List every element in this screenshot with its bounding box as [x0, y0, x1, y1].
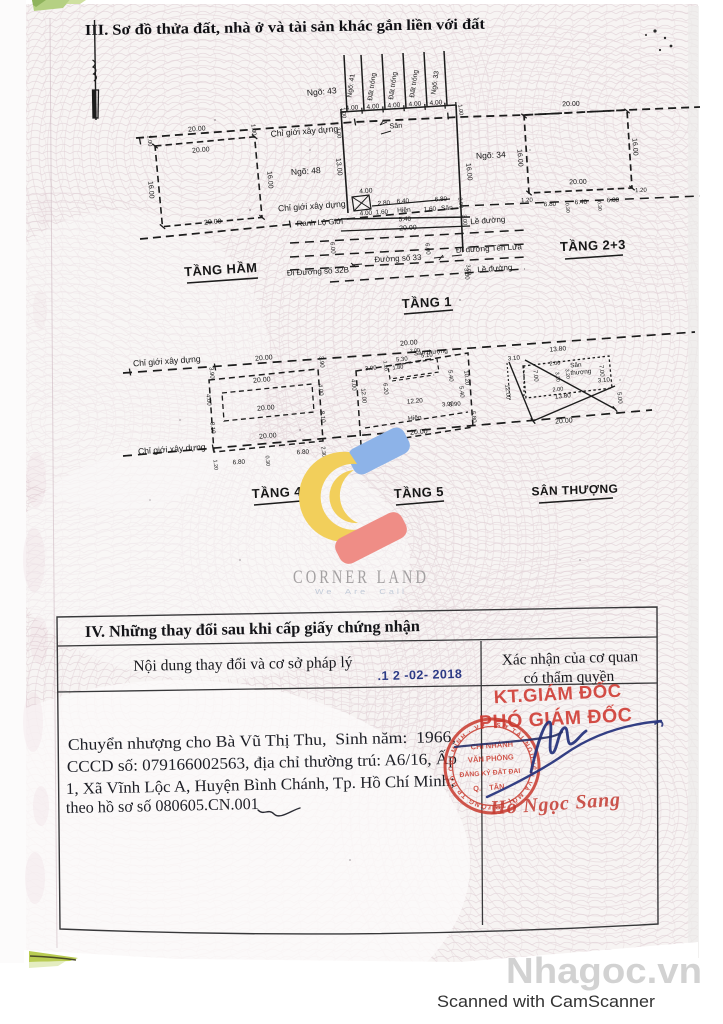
svg-text:1.80: 1.80 — [392, 365, 403, 372]
svg-text:3.90: 3.90 — [449, 401, 462, 408]
svg-text:4.00: 4.00 — [359, 188, 373, 196]
svg-text:3.10: 3.10 — [598, 376, 611, 384]
svg-text:6.80: 6.80 — [232, 459, 245, 467]
svg-text:6.80: 6.80 — [544, 201, 557, 208]
svg-text:20.00: 20.00 — [562, 101, 580, 109]
svg-text:Nhagoc.vn: Nhagoc.vn — [506, 950, 702, 991]
svg-text:5.00: 5.00 — [615, 392, 622, 405]
svg-text:5.30: 5.30 — [396, 356, 409, 363]
svg-text:12.20: 12.20 — [407, 397, 424, 405]
svg-text:4.00: 4.00 — [408, 101, 422, 109]
svg-text:5.40: 5.40 — [399, 216, 412, 224]
svg-text:6.80: 6.80 — [296, 449, 309, 457]
svg-text:8.10: 8.10 — [318, 411, 325, 424]
svg-text:0.30: 0.30 — [595, 201, 602, 212]
svg-text:1.20: 1.20 — [211, 459, 218, 470]
svg-text:7.00: 7.00 — [531, 370, 538, 383]
svg-text:4.00: 4.00 — [345, 104, 359, 112]
svg-text:6.00: 6.00 — [328, 242, 335, 255]
svg-text:2.80: 2.80 — [378, 200, 391, 208]
svg-text:6.40: 6.40 — [397, 198, 410, 206]
svg-text:3.00: 3.00 — [460, 214, 467, 225]
svg-text:8.10: 8.10 — [208, 422, 215, 435]
svg-text:16.00: 16.00 — [515, 149, 523, 167]
svg-text:Hiên: Hiên — [408, 414, 422, 422]
svg-text:6.20: 6.20 — [381, 383, 388, 396]
svg-text:20.00: 20.00 — [399, 225, 417, 233]
svg-text:4.00: 4.00 — [366, 103, 380, 111]
svg-text:1.60: 1.60 — [424, 206, 437, 214]
svg-text:SÂN THƯỢNG: SÂN THƯỢNG — [531, 480, 618, 498]
svg-text:2.00: 2.00 — [410, 348, 421, 355]
svg-text:TẦNG 4: TẦNG 4 — [251, 484, 302, 501]
svg-text:6.00: 6.00 — [423, 243, 430, 256]
svg-text:13.80: 13.80 — [555, 392, 572, 400]
svg-text:TẦNG 5: TẦNG 5 — [393, 484, 444, 501]
svg-text:4.00: 4.00 — [349, 379, 356, 392]
svg-text:TẦNG 1: TẦNG 1 — [401, 294, 452, 311]
svg-text:5.10: 5.10 — [421, 352, 434, 359]
svg-text:7.00: 7.00 — [597, 365, 604, 378]
svg-text:3.20: 3.20 — [563, 369, 570, 380]
svg-text:Ngõ: 34: Ngõ: 34 — [476, 149, 507, 161]
svg-text:16.00: 16.00 — [630, 138, 638, 156]
svg-text:4.00: 4.00 — [204, 394, 211, 407]
svg-text:Hiên: Hiên — [397, 207, 411, 215]
svg-text:Ngõ: 48: Ngõ: 48 — [291, 165, 322, 177]
svg-text:20.00: 20.00 — [569, 179, 587, 187]
svg-text:20.00: 20.00 — [555, 417, 573, 425]
svg-text:13.80: 13.80 — [549, 345, 566, 353]
svg-text:4.00: 4.00 — [429, 99, 443, 107]
svg-text:Sân: Sân — [441, 205, 453, 213]
svg-text:6.40: 6.40 — [575, 199, 588, 206]
svg-text:3.90: 3.90 — [317, 356, 324, 369]
svg-text:Scanned with CamScanner: Scanned with CamScanner — [437, 993, 656, 1011]
svg-text:3.90: 3.90 — [365, 365, 378, 372]
svg-text:5.80: 5.80 — [469, 411, 476, 424]
svg-text:3.10: 3.10 — [508, 354, 521, 362]
svg-text:CORNER LAND: CORNER LAND — [293, 567, 429, 588]
svg-text:5.40: 5.40 — [457, 386, 464, 399]
svg-text:0.30: 0.30 — [563, 203, 570, 214]
svg-text:1.20: 1.20 — [521, 198, 534, 204]
svg-text:6.80: 6.80 — [435, 196, 448, 204]
svg-text:3.90: 3.90 — [207, 367, 214, 380]
svg-text:3.00: 3.00 — [462, 268, 469, 281]
svg-text:4.00: 4.00 — [387, 102, 401, 110]
svg-text:6.80: 6.80 — [607, 197, 620, 204]
svg-text:0.30: 0.30 — [263, 455, 270, 466]
svg-text:2.00: 2.00 — [549, 361, 560, 368]
svg-text:Sân: Sân — [389, 121, 402, 131]
svg-text:Xác nhận của cơ quan: Xác nhận của cơ quan — [502, 648, 639, 669]
svg-text:4.00: 4.00 — [316, 384, 323, 397]
svg-text:1.20: 1.20 — [635, 188, 648, 194]
svg-text:5.40: 5.40 — [446, 370, 453, 383]
svg-text:TẦNG 2+3: TẦNG 2+3 — [560, 237, 626, 254]
svg-text:1.20: 1.20 — [381, 361, 388, 372]
svg-text:1.60: 1.60 — [376, 209, 389, 217]
svg-text:We Are Call: We Are Call — [315, 587, 407, 596]
svg-text:3.00: 3.00 — [456, 197, 463, 208]
svg-text:4.00: 4.00 — [360, 210, 373, 218]
svg-text:.1 2 -02- 2018: .1 2 -02- 2018 — [377, 667, 462, 683]
